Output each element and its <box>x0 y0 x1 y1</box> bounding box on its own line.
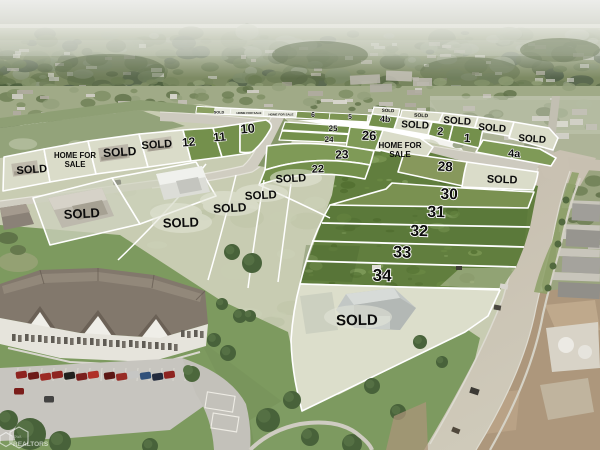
svg-text:SOLD: SOLD <box>518 133 546 146</box>
svg-text:10: 10 <box>240 120 256 136</box>
svg-text:REALTORS: REALTORS <box>13 441 49 448</box>
svg-text:SOLD: SOLD <box>245 189 278 203</box>
svg-text:HOME FOR SALE: HOME FOR SALE <box>236 111 261 115</box>
svg-text:25: 25 <box>328 124 338 133</box>
svg-text:23: 23 <box>335 147 349 161</box>
svg-text:SOLD: SOLD <box>16 163 47 177</box>
svg-text:2: 2 <box>437 126 444 138</box>
svg-text:22: 22 <box>312 163 325 175</box>
svg-text:SOLD: SOLD <box>275 172 306 186</box>
svg-text:SOLD: SOLD <box>487 173 518 186</box>
svg-text:32: 32 <box>410 223 428 241</box>
svg-text:SOLD: SOLD <box>213 200 247 216</box>
svg-text:33: 33 <box>393 243 412 262</box>
svg-text:SOLD: SOLD <box>214 111 225 115</box>
svg-text:31: 31 <box>427 204 445 222</box>
svg-text:SOLD: SOLD <box>336 312 378 330</box>
svg-text:28: 28 <box>437 159 453 175</box>
svg-text:SOLD: SOLD <box>382 108 395 113</box>
svg-text:34: 34 <box>372 266 392 286</box>
svg-text:SOLD: SOLD <box>141 138 172 152</box>
svg-text:4a: 4a <box>508 148 522 161</box>
svg-text:IOWA: IOWA <box>13 435 22 439</box>
svg-text:4b: 4b <box>380 114 392 125</box>
svg-text:6: 6 <box>311 112 315 119</box>
svg-text:SOLD: SOLD <box>63 205 100 222</box>
svg-text:30: 30 <box>440 186 458 204</box>
svg-text:SOLD: SOLD <box>443 115 471 128</box>
svg-text:26: 26 <box>362 128 377 143</box>
svg-text:5: 5 <box>348 114 352 121</box>
svg-text:SOLD: SOLD <box>401 119 429 131</box>
svg-text:24: 24 <box>324 135 334 144</box>
svg-text:HOME FOR SALE: HOME FOR SALE <box>268 112 293 116</box>
svg-text:12: 12 <box>181 134 196 149</box>
svg-text:SOLD: SOLD <box>163 214 200 230</box>
svg-text:SOLD: SOLD <box>478 122 506 135</box>
svg-text:11: 11 <box>213 129 227 144</box>
svg-text:SOLD: SOLD <box>414 113 429 120</box>
svg-text:1: 1 <box>463 131 471 145</box>
svg-text:SOLD: SOLD <box>103 144 138 160</box>
